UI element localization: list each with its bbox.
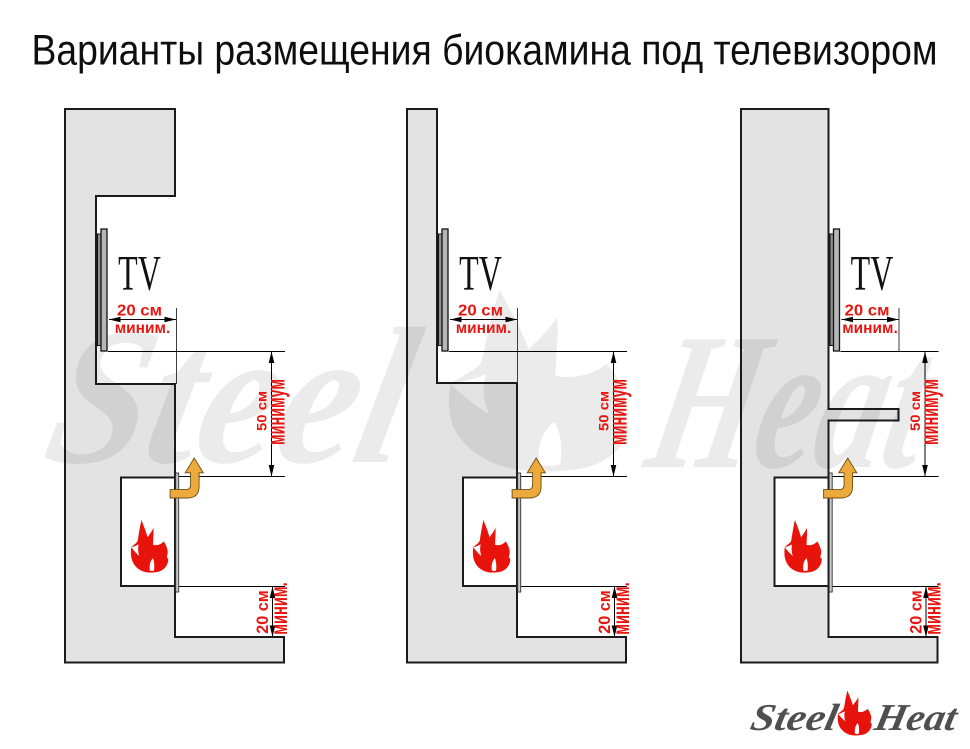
svg-text:TV: TV [851,247,894,302]
svg-text:миним.: миним. [608,582,634,635]
svg-text:Steel: Steel [747,697,842,739]
svg-text:миним.: миним. [266,582,292,635]
svg-text:минимум: минимум [605,379,633,445]
svg-text:TV: TV [459,247,502,302]
svg-text:миним.: миним. [920,582,946,635]
svg-text:Варианты размещения биокамина: Варианты размещения биокамина под телеви… [32,27,938,75]
svg-text:минимум: минимум [916,379,944,445]
svg-text:20 см: 20 см [845,302,890,319]
svg-text:миним.: миним. [456,320,512,337]
svg-text:Steel: Steel [31,288,435,505]
svg-text:миним.: миним. [842,320,898,337]
svg-text:TV: TV [118,247,161,302]
svg-text:20 см: 20 см [458,302,503,319]
svg-text:миним.: миним. [115,320,171,337]
svg-text:минимум: минимум [263,379,291,445]
svg-text:20 см: 20 см [117,302,162,319]
svg-text:Heat: Heat [870,697,962,739]
